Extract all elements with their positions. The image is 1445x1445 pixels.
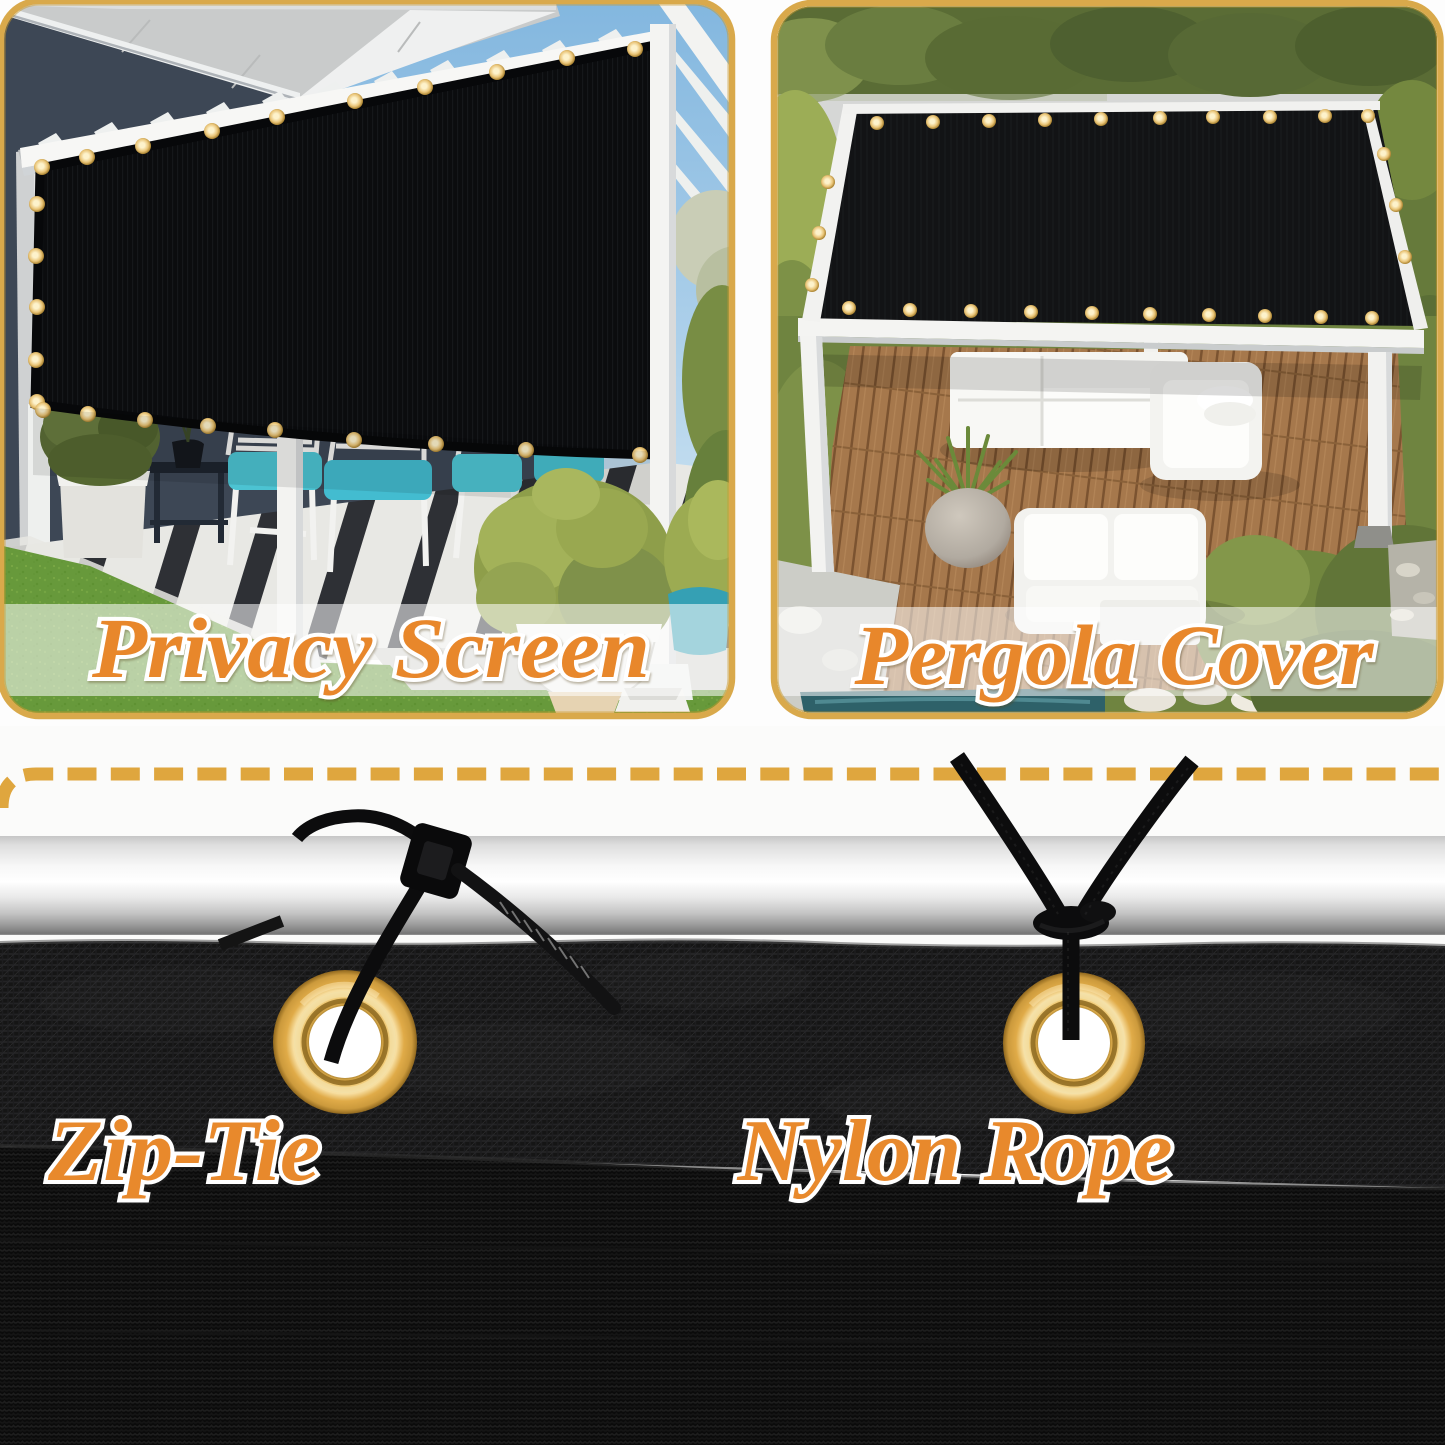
svg-text:Pergola Cover: Pergola Cover — [853, 607, 1375, 703]
svg-text:Nylon Rope: Nylon Rope — [736, 1103, 1172, 1200]
svg-text:Zip-Tie: Zip-Tie — [47, 1103, 320, 1200]
svg-text:Privacy Screen: Privacy Screen — [91, 600, 650, 696]
